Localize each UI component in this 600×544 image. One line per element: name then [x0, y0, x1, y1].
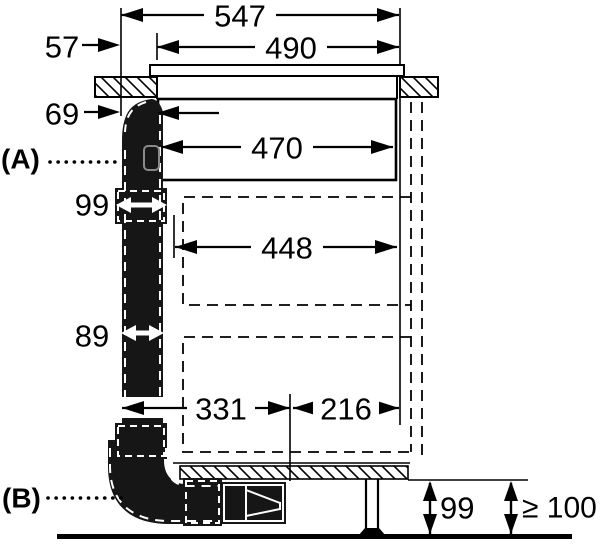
arrow-right-icon — [377, 401, 399, 415]
floor-line — [57, 534, 572, 539]
shelf-hatched-panel — [180, 466, 408, 479]
dim-inner-clearance-label: 448 — [261, 231, 313, 266]
dim-bottom-left-span-label: 331 — [195, 392, 247, 427]
dim-plinth-height-label: 99 — [440, 491, 474, 526]
duct-coupling-lower — [115, 423, 167, 459]
arrow-up-icon — [423, 481, 437, 501]
worktop-left-section — [95, 77, 157, 97]
arrow-down-icon — [504, 514, 518, 534]
arrow-right-icon — [98, 105, 120, 119]
arrow-right-icon — [375, 240, 397, 254]
worktop-right-section — [400, 77, 438, 97]
hob-body-sides — [157, 76, 397, 99]
dim-top-width-label: 490 — [265, 31, 317, 66]
arrow-right-icon — [268, 401, 290, 415]
arrow-right-icon — [377, 8, 399, 22]
dim-coupling-width-label: 99 — [75, 188, 109, 223]
diagram-canvas: 547 490 57 69 470 99 448 89 331 216 99 ≥… — [0, 0, 600, 544]
dim-plinth-height — [423, 481, 437, 534]
dim-appliance-width-label: 470 — [251, 131, 303, 166]
cabinet-side-dashed-lines — [411, 102, 422, 462]
dim-total-width-label: 547 — [214, 0, 266, 34]
dim-min-floor-clearance-label: ≥ 100 — [522, 492, 597, 525]
arrow-down-icon — [423, 514, 437, 534]
dim-duct-width-label: 89 — [75, 319, 109, 354]
arrow-left-icon — [293, 401, 315, 415]
dim-left-inset — [82, 38, 120, 52]
dim-bottom-right-span-label: 216 — [320, 392, 372, 427]
installation-diagram: 547 490 57 69 470 99 448 89 331 216 99 ≥… — [0, 0, 600, 544]
dim-left-inset-label: 57 — [45, 30, 79, 65]
cabinet-leg — [366, 479, 378, 529]
dim-duct-top-inset-label: 69 — [45, 97, 79, 132]
hob-glass-plate — [150, 65, 404, 76]
duct-vertical-run — [122, 99, 163, 446]
duct-outlet-adapter — [221, 482, 286, 524]
arrow-left-icon — [175, 240, 197, 254]
section-b-label: (B) — [2, 483, 41, 514]
section-a-label: (A) — [1, 144, 40, 175]
arrow-left-icon — [157, 40, 179, 54]
arrow-right-icon — [98, 38, 120, 52]
arrow-right-icon — [377, 40, 399, 54]
dim-min-floor-clearance — [504, 481, 518, 534]
arrow-left-icon — [121, 8, 143, 22]
arrow-up-icon — [504, 481, 518, 501]
